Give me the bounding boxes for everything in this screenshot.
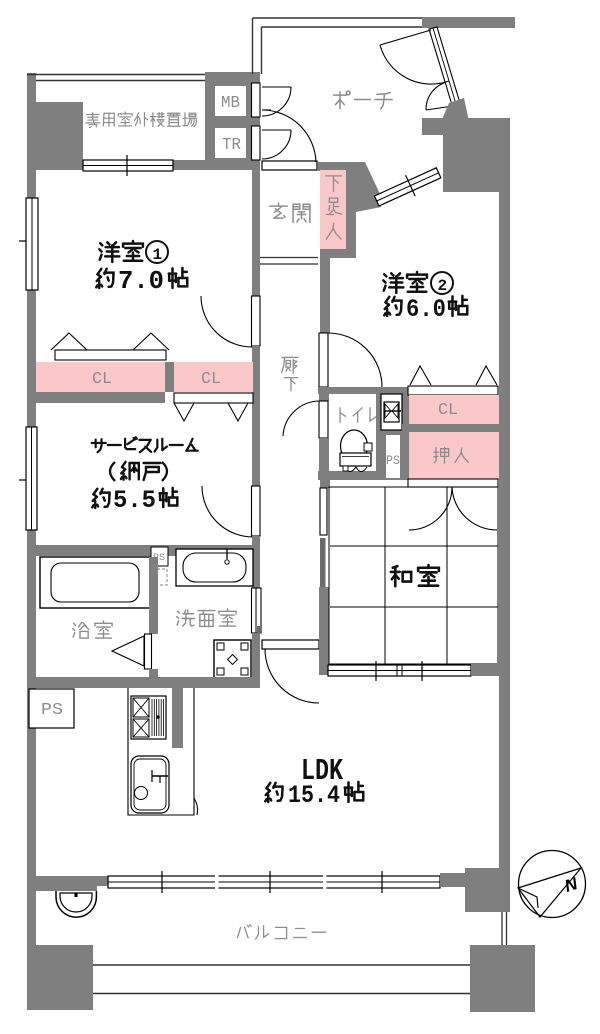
svg-text:7.0: 7.0 — [118, 266, 164, 296]
svg-text:CL: CL — [201, 370, 221, 389]
svg-text:15.4: 15.4 — [288, 781, 340, 810]
svg-text:TR: TR — [222, 136, 241, 155]
svg-text:CL: CL — [438, 401, 458, 420]
svg-text:CL: CL — [92, 370, 112, 389]
svg-text:6.0: 6.0 — [406, 295, 446, 324]
svg-text:PS: PS — [41, 701, 63, 720]
svg-text:5.5: 5.5 — [113, 486, 156, 515]
svg-text:1: 1 — [153, 246, 163, 264]
svg-text:2: 2 — [438, 277, 448, 295]
svg-text:MB: MB — [221, 94, 240, 113]
svg-text:PS: PS — [386, 453, 400, 468]
